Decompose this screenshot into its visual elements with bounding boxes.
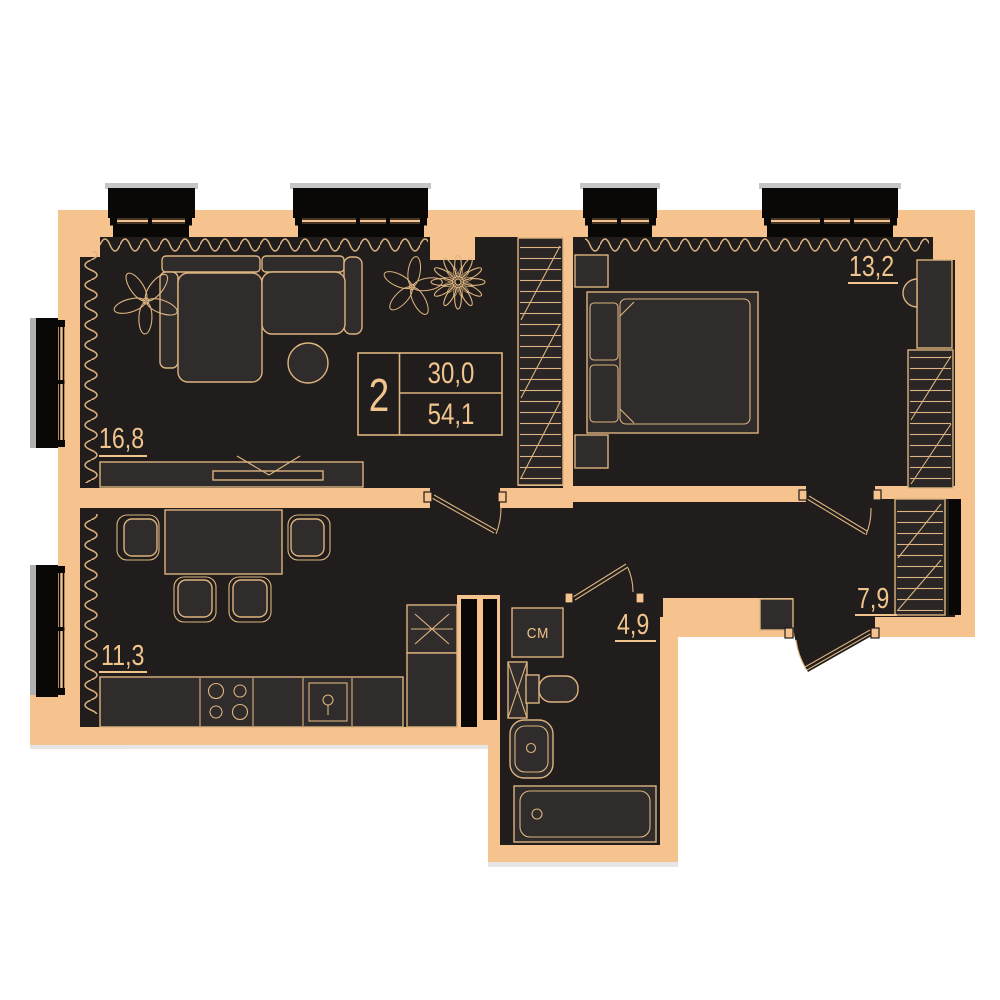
bathroom-sink	[510, 720, 553, 778]
living-area-label: 30,0	[428, 355, 475, 389]
water-heater-icon	[508, 662, 527, 718]
wardrobe	[895, 499, 945, 615]
area-label-hallway: 7,9	[857, 581, 889, 614]
area-label-bathroom: 4,9	[617, 607, 649, 640]
area-label-kitchen: 11,3	[101, 638, 144, 671]
vent-shaft-icon	[461, 599, 477, 727]
wardrobe	[908, 350, 953, 488]
area-label-bedroom: 13,2	[849, 249, 894, 282]
fridge	[407, 605, 457, 727]
curtain-icon	[84, 251, 98, 483]
curtain-icon	[84, 514, 98, 714]
floor-plan-page: СМ	[0, 0, 1000, 1000]
area-label-living: 16,8	[99, 421, 144, 454]
nightstand	[575, 435, 608, 468]
window-icon	[108, 188, 195, 237]
nightstand	[575, 255, 608, 287]
bathtub	[514, 786, 656, 842]
floor-plan: СМ	[0, 0, 1000, 1000]
window-icon	[293, 188, 428, 237]
washing-machine-label: СМ	[527, 625, 550, 642]
vent-shaft-icon	[483, 599, 497, 720]
total-area-label: 54,1	[428, 396, 475, 430]
rooms-count-label: 2	[369, 369, 389, 421]
toilet	[526, 675, 578, 703]
curtain-icon	[100, 238, 428, 252]
dining-table	[165, 510, 282, 574]
kitchen-counter	[100, 677, 403, 727]
vent-shaft-icon	[949, 499, 961, 615]
chair	[174, 577, 216, 622]
window-icon	[583, 188, 657, 237]
coffee-table	[288, 343, 328, 383]
window-icon	[762, 188, 898, 237]
wardrobe	[518, 238, 563, 485]
washing-machine: СМ	[512, 608, 563, 657]
electric-panel-icon	[760, 599, 793, 630]
bed	[587, 292, 758, 433]
chair	[229, 577, 271, 622]
